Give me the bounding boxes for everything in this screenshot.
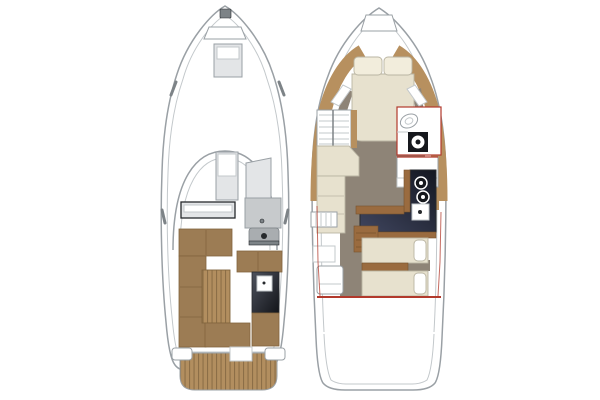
helm-seat-dot <box>261 233 267 239</box>
galley-sink-drain <box>418 210 422 214</box>
galley-trim-top <box>356 206 404 214</box>
floorplan-svg <box>0 0 600 400</box>
transom-walkway <box>230 347 252 361</box>
helm-windscreen <box>246 158 271 201</box>
galley-trim-left <box>404 170 410 212</box>
v-berth-pillow-starboard <box>384 57 412 75</box>
side-locker <box>311 212 337 227</box>
helm-wheel-dot <box>260 219 264 223</box>
lower-deck-plan <box>311 8 446 390</box>
main-deck-plan <box>161 6 289 390</box>
helm-console <box>245 198 281 228</box>
aft-bed-1-pillow <box>414 240 426 261</box>
stern-cleat-starboard <box>265 348 285 360</box>
aft-bed-divider <box>362 263 408 271</box>
aft-cabinet <box>317 266 343 294</box>
bow-anchor-fitting <box>220 9 231 18</box>
stern-cleat-port <box>172 348 192 360</box>
starboard-aft-cushion <box>252 313 279 346</box>
aft-bed-2-pillow <box>414 273 426 294</box>
cooktop-burner-1-center <box>419 181 423 185</box>
cleat-mark-bow-starboard <box>279 82 284 95</box>
wet-bar-sink-dot <box>263 282 266 285</box>
settee-top <box>317 146 359 176</box>
port-storage-locker-lid <box>184 205 232 212</box>
anchor-locker <box>361 15 397 31</box>
side-shelf-aft <box>313 246 335 262</box>
v-berth-pillow-port <box>354 57 382 75</box>
cockpit-table <box>202 270 230 323</box>
swim-platform <box>180 353 277 390</box>
port-sofa-back <box>179 229 232 256</box>
head-sink-drain <box>416 140 421 145</box>
companionway-post-top <box>218 154 236 176</box>
foredeck-hatch-panel <box>217 47 239 59</box>
starboard-bench <box>237 251 282 272</box>
stair-edge-trim <box>351 110 357 148</box>
anchor-locker <box>204 27 246 39</box>
aft-bench <box>205 323 250 347</box>
helm-seat-back <box>249 241 279 245</box>
companionway-stairs <box>317 110 351 148</box>
cooktop-burner-2-center <box>421 195 425 199</box>
boat-floorplan-diagram <box>0 0 600 400</box>
